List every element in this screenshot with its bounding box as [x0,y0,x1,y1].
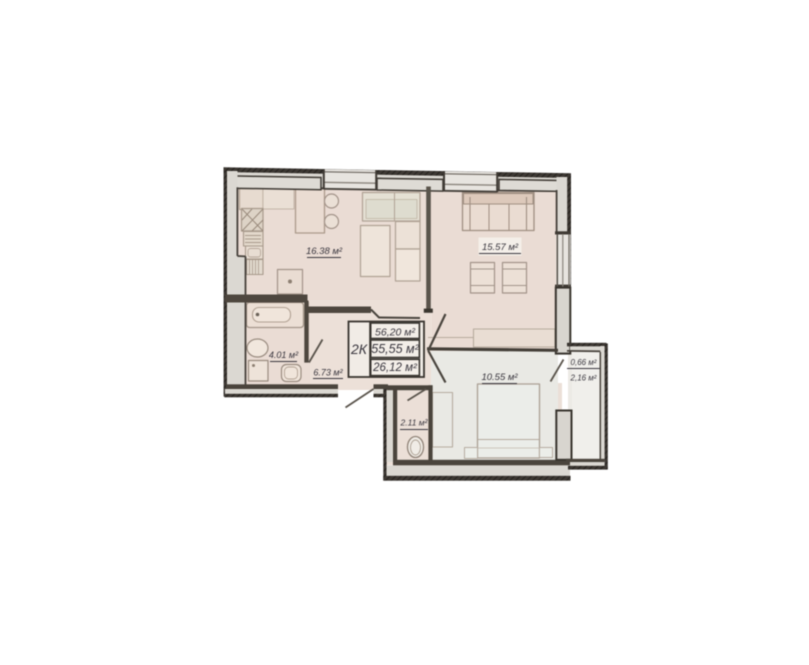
svg-text:55,55 м²: 55,55 м² [371,342,419,356]
svg-text:4.01 м²: 4.01 м² [269,350,299,360]
svg-text:56,20 м²: 56,20 м² [375,327,415,339]
svg-text:10.55 м²: 10.55 м² [481,372,518,383]
svg-text:2К: 2К [350,341,368,357]
svg-text:2,16 м²: 2,16 м² [570,374,597,383]
svg-text:6.73 м²: 6.73 м² [313,368,343,378]
svg-text:16.38 м²: 16.38 м² [306,246,343,257]
svg-text:26,12 м²: 26,12 м² [372,362,418,374]
svg-text:2.11 м²: 2.11 м² [400,418,429,428]
svg-text:15.57 м²: 15.57 м² [482,242,519,253]
svg-text:0,66 м²: 0,66 м² [571,358,597,367]
